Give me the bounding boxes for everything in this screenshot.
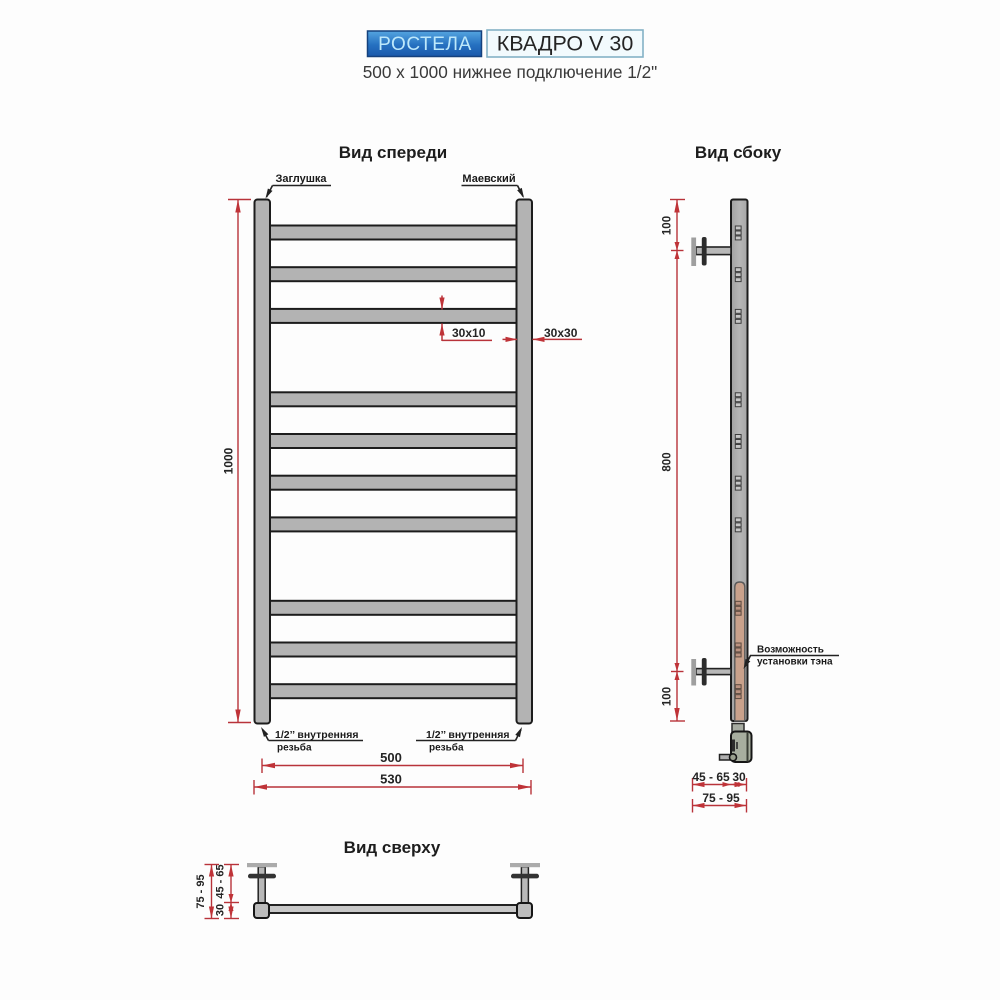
svg-text:75 - 95: 75 - 95	[702, 791, 740, 805]
svg-text:30: 30	[732, 770, 746, 784]
svg-text:Маевский: Маевский	[462, 173, 515, 185]
svg-text:100: 100	[662, 687, 674, 706]
svg-text:500 x 1000 нижнее подключение: 500 x 1000 нижнее подключение 1/2"	[363, 62, 658, 82]
svg-text:установки тэна: установки тэна	[757, 657, 833, 668]
svg-text:30: 30	[215, 904, 227, 916]
svg-text:Вид спереди: Вид спереди	[339, 143, 448, 162]
svg-text:резьба: резьба	[277, 742, 312, 754]
svg-text:75 - 95: 75 - 95	[195, 874, 207, 908]
svg-text:30x30: 30x30	[544, 326, 578, 340]
svg-text:45 - 65: 45 - 65	[215, 864, 227, 898]
svg-text:Вид сверху: Вид сверху	[344, 838, 441, 857]
svg-text:Возможность: Возможность	[757, 645, 824, 656]
svg-text:500: 500	[380, 750, 402, 765]
svg-text:1000: 1000	[222, 447, 236, 474]
svg-text:1/2’’ внутренняя: 1/2’’ внутренняя	[426, 729, 509, 741]
svg-text:530: 530	[380, 772, 402, 787]
svg-text:1/2’’ внутренняя: 1/2’’ внутренняя	[275, 729, 358, 741]
svg-text:Вид сбоку: Вид сбоку	[695, 143, 782, 162]
svg-text:РОСТЕЛА: РОСТЕЛА	[378, 34, 472, 55]
svg-text:800: 800	[662, 452, 674, 471]
svg-text:Заглушка: Заглушка	[275, 173, 327, 185]
svg-text:30x10: 30x10	[452, 326, 486, 340]
svg-text:КВАДРО V 30: КВАДРО V 30	[497, 32, 634, 56]
svg-text:45 - 65: 45 - 65	[692, 770, 730, 784]
svg-text:резьба: резьба	[429, 742, 464, 754]
svg-text:100: 100	[662, 216, 674, 235]
